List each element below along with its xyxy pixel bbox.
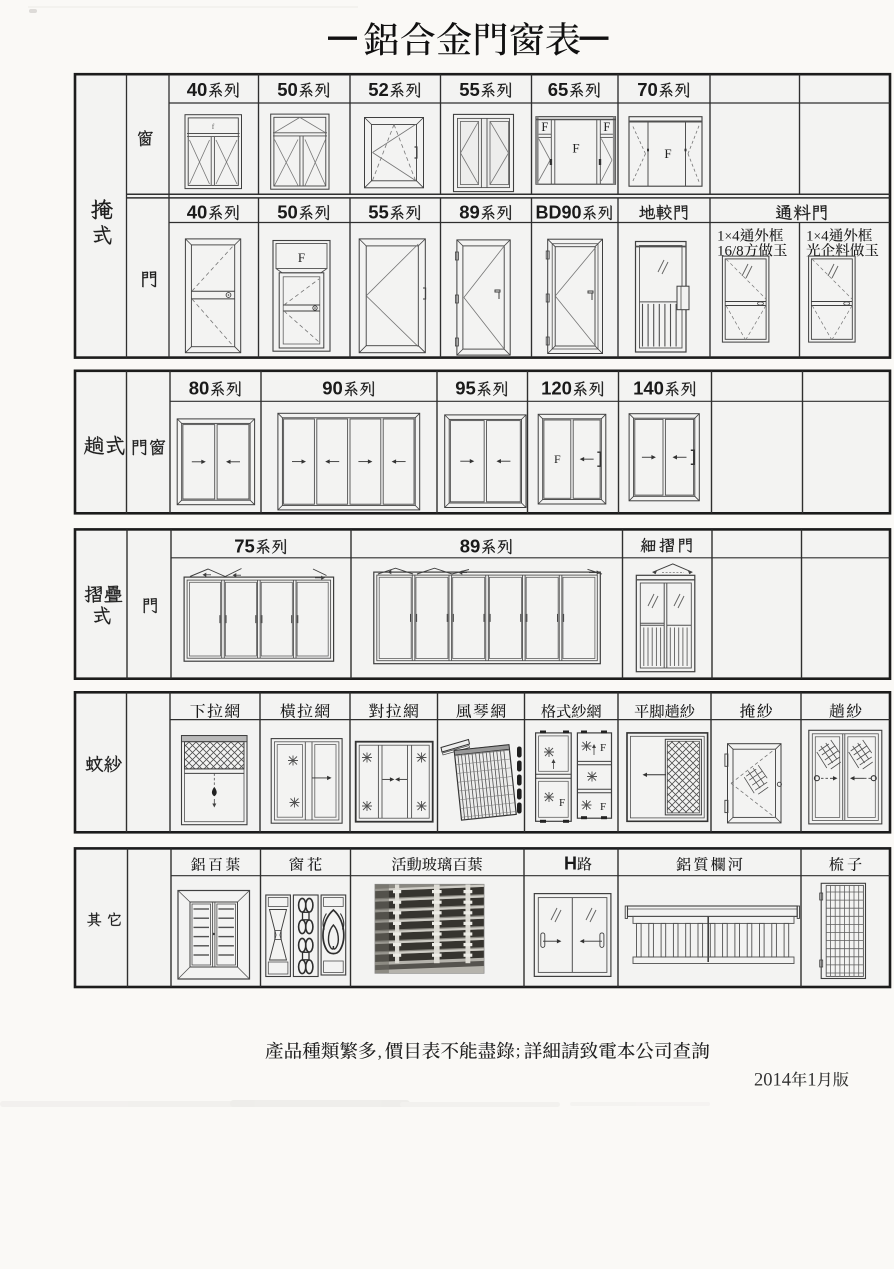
svg-text:50: 50 [277,201,298,222]
svg-text:F: F [572,141,579,156]
svg-text:80: 80 [189,378,210,399]
svg-text:1: 1 [807,1070,816,1090]
svg-text:×: × [725,229,733,244]
svg-text:,: , [378,1043,382,1062]
svg-text:89: 89 [460,535,481,556]
svg-text:40: 40 [187,79,208,100]
svg-text:F: F [603,120,610,134]
svg-text:50: 50 [277,79,298,100]
svg-text:40: 40 [187,201,208,222]
svg-text:16/8: 16/8 [717,244,744,260]
svg-text:F: F [554,452,561,466]
svg-text:1: 1 [717,229,725,245]
svg-text:H: H [564,853,577,873]
svg-text:90: 90 [322,378,343,399]
svg-text:52: 52 [368,79,389,100]
svg-text:;: ; [516,1041,521,1060]
svg-text:55: 55 [459,79,480,100]
svg-text:89: 89 [459,201,480,222]
svg-text:55: 55 [368,201,389,222]
svg-text:75: 75 [234,535,255,556]
svg-text:F: F [559,797,565,809]
svg-text:F: F [664,146,671,161]
svg-text:140: 140 [633,378,664,399]
svg-text:4: 4 [732,229,740,245]
svg-text:F: F [600,801,606,813]
svg-text:1: 1 [806,229,814,245]
svg-text:BD90: BD90 [535,202,581,222]
svg-text:F: F [298,250,305,265]
svg-text:65: 65 [548,79,569,100]
svg-text:95: 95 [455,378,476,399]
svg-text:×: × [814,229,822,244]
svg-text:F: F [600,742,606,754]
svg-text:70: 70 [637,79,658,100]
svg-text:120: 120 [541,378,572,399]
svg-text:4: 4 [821,229,829,245]
svg-text:2014: 2014 [754,1070,791,1090]
svg-text:F: F [541,120,548,134]
